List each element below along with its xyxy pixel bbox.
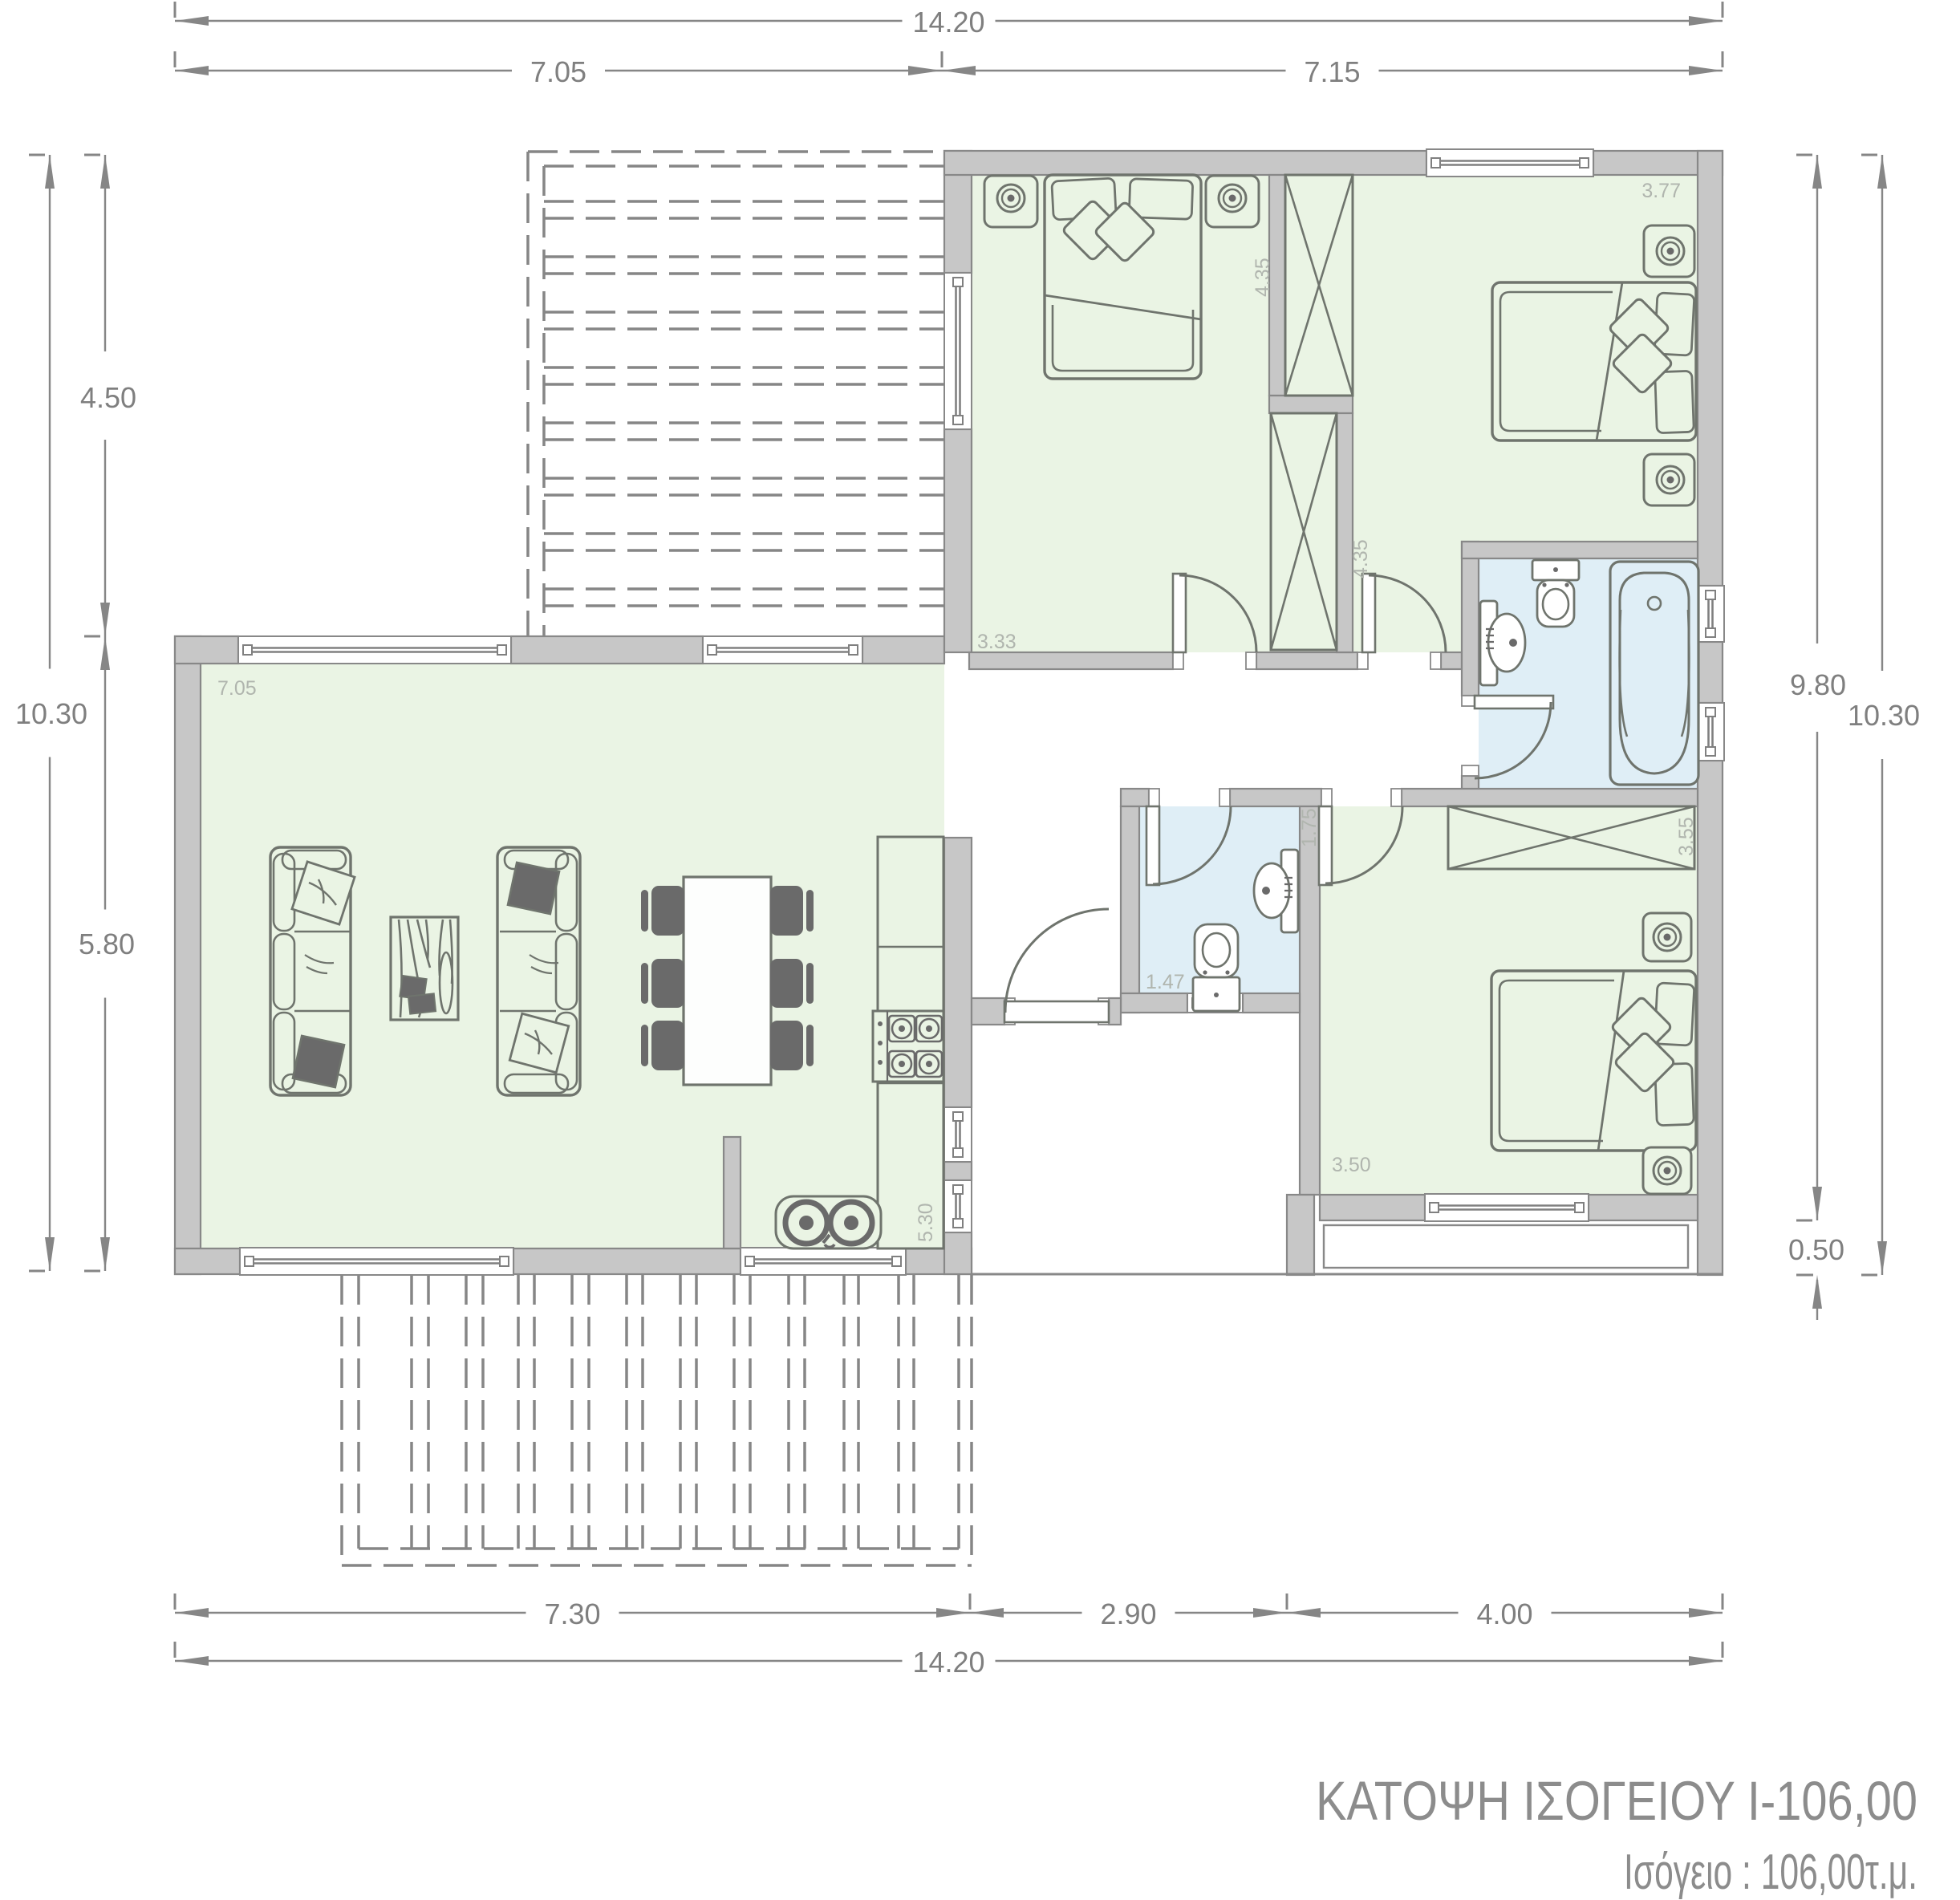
svg-text:7.05: 7.05 — [530, 55, 586, 88]
svg-text:3.55: 3.55 — [1675, 817, 1698, 856]
svg-text:3.50: 3.50 — [1332, 1154, 1371, 1176]
svg-text:3.77: 3.77 — [1641, 180, 1681, 202]
svg-text:0.50: 0.50 — [1788, 1233, 1844, 1266]
svg-text:14.20: 14.20 — [912, 1646, 984, 1679]
svg-text:7.30: 7.30 — [544, 1598, 600, 1630]
svg-text:Ισόγειο : 106,00τ.μ.: Ισόγειο : 106,00τ.μ. — [1624, 1845, 1917, 1900]
svg-text:5.80: 5.80 — [79, 928, 135, 960]
svg-text:10.30: 10.30 — [1848, 699, 1920, 732]
svg-text:5.30: 5.30 — [915, 1203, 937, 1242]
svg-text:4.00: 4.00 — [1476, 1598, 1532, 1630]
svg-text:10.30: 10.30 — [15, 697, 87, 730]
svg-text:3.33: 3.33 — [977, 631, 1017, 653]
svg-text:4.35: 4.35 — [1349, 539, 1372, 579]
svg-text:14.20: 14.20 — [912, 6, 984, 39]
svg-text:1.47: 1.47 — [1146, 971, 1185, 993]
svg-text:2.90: 2.90 — [1100, 1598, 1156, 1630]
svg-text:7.15: 7.15 — [1304, 55, 1360, 88]
svg-text:7.05: 7.05 — [217, 677, 257, 700]
svg-text:9.80: 9.80 — [1790, 668, 1846, 701]
svg-text:ΚΑΤΟΨΗ ΙΣΟΓΕΙΟΥ Ι-106,00: ΚΑΤΟΨΗ ΙΣΟΓΕΙΟΥ Ι-106,00 — [1316, 1770, 1917, 1832]
svg-text:4.35: 4.35 — [1252, 258, 1274, 297]
svg-text:1.75: 1.75 — [1298, 808, 1321, 847]
svg-text:4.50: 4.50 — [80, 381, 136, 414]
